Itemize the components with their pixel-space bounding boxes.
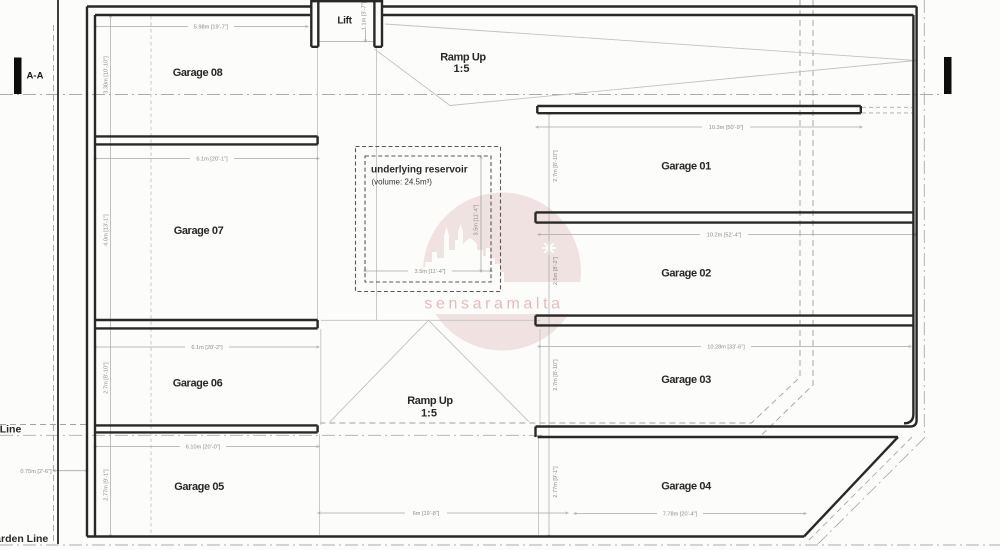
svg-text:0.75m [2'-6"]: 0.75m [2'-6"] <box>20 469 52 475</box>
svg-text:2.77m [9'-1"]: 2.77m [9'-1"] <box>553 466 559 498</box>
svg-text:Ramp Up: Ramp Up <box>440 52 486 64</box>
svg-text:2.7m [8'-10"]: 2.7m [8'-10"] <box>553 359 559 391</box>
svg-text:Ramp Up: Ramp Up <box>407 395 453 407</box>
svg-text:6.10m [20'-0"]: 6.10m [20'-0"] <box>186 445 221 451</box>
svg-text:Garage 03: Garage 03 <box>661 374 711 386</box>
svg-text:Garage 02: Garage 02 <box>661 268 711 280</box>
svg-text:Garage 08: Garage 08 <box>173 67 223 79</box>
svg-text:2.7m [8'-10"]: 2.7m [8'-10"] <box>553 150 559 182</box>
svg-text:6.1m [20'-1"]: 6.1m [20'-1"] <box>196 157 228 163</box>
svg-text:underlying reservoir: underlying reservoir <box>371 165 468 176</box>
svg-text:2.5m [8'-2"]: 2.5m [8'-2"] <box>553 256 559 285</box>
svg-text:Garden Line: Garden Line <box>0 533 48 545</box>
svg-text:3.30m [10'-10"]: 3.30m [10'-10"] <box>104 56 110 94</box>
svg-text:Line: Line <box>0 424 21 436</box>
svg-text:2.7m [8'-10"]: 2.7m [8'-10"] <box>104 362 110 394</box>
svg-text:1.1m [3'-7"]: 1.1m [3'-7"] <box>362 1 368 30</box>
svg-text:10.3m [50'-9"]: 10.3m [50'-9"] <box>709 125 744 131</box>
svg-text:Garage 04: Garage 04 <box>661 481 712 493</box>
svg-text:3.5m [11'-4"]: 3.5m [11'-4"] <box>415 269 446 275</box>
svg-text:6m [19'-8"]: 6m [19'-8"] <box>413 511 440 517</box>
svg-text:Lift: Lift <box>337 16 352 27</box>
svg-text:sensaramalta: sensaramalta <box>424 296 563 313</box>
svg-text:5.98m [19'-7"]: 5.98m [19'-7"] <box>194 25 229 31</box>
svg-text:Garage 05: Garage 05 <box>174 481 224 493</box>
svg-text:7.78m [20'-4"]: 7.78m [20'-4"] <box>663 512 698 518</box>
svg-text:Garage 06: Garage 06 <box>173 378 223 390</box>
svg-text:10.2m [52'-4"]: 10.2m [52'-4"] <box>707 233 742 239</box>
svg-text:4.0m [13'-1"]: 4.0m [13'-1"] <box>104 214 110 246</box>
svg-text:10.28m [33'-6"]: 10.28m [33'-6"] <box>707 345 745 351</box>
svg-text:Garage 01: Garage 01 <box>661 161 711 173</box>
svg-text:1:5: 1:5 <box>421 408 437 420</box>
svg-text:6.1m [20'-2"]: 6.1m [20'-2"] <box>191 345 223 351</box>
svg-text:1:5: 1:5 <box>454 63 470 75</box>
svg-text:2.77m [9'-1"]: 2.77m [9'-1"] <box>104 469 110 501</box>
svg-text:Garage 07: Garage 07 <box>174 225 224 237</box>
svg-text:(volume: 24.5m³): (volume: 24.5m³) <box>372 178 433 187</box>
svg-text:3.5m [11'-4"]: 3.5m [11'-4"] <box>474 204 480 235</box>
svg-text:A-A: A-A <box>27 71 44 82</box>
